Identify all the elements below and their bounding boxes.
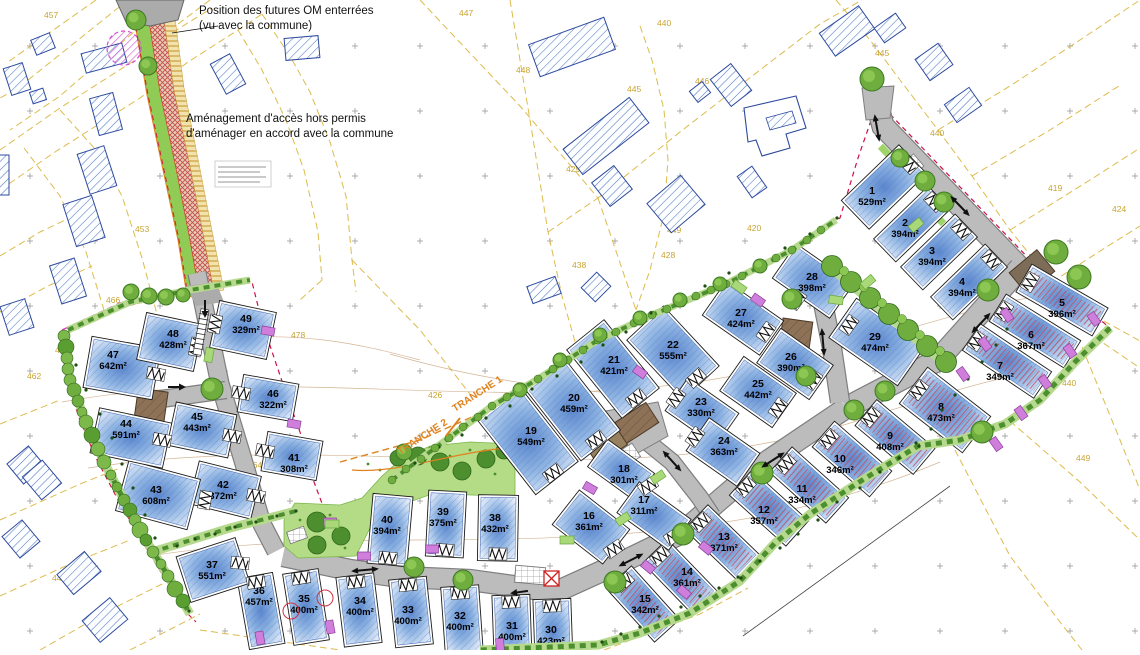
svg-text:424m²: 424m² [727,319,754,330]
svg-text:3: 3 [929,245,935,257]
svg-text:608m²: 608m² [142,496,169,507]
svg-text:14: 14 [681,566,693,578]
svg-text:23: 23 [695,396,707,408]
svg-text:7: 7 [997,360,1003,372]
svg-text:342m²: 342m² [631,605,658,616]
svg-text:2: 2 [902,217,908,229]
svg-text:591m²: 591m² [112,430,139,441]
svg-text:5: 5 [1059,297,1065,309]
svg-text:26: 26 [785,351,797,363]
svg-text:45: 45 [191,411,203,423]
svg-text:19: 19 [525,425,537,437]
svg-text:400m²: 400m² [290,605,317,616]
svg-text:555m²: 555m² [659,351,686,362]
svg-text:394m²: 394m² [373,526,400,537]
svg-text:428m²: 428m² [159,340,186,351]
svg-text:474m²: 474m² [861,343,888,354]
svg-text:346m²: 346m² [826,465,853,476]
svg-text:457m²: 457m² [245,597,272,608]
svg-text:34: 34 [354,595,366,607]
svg-text:371m²: 371m² [710,543,737,554]
svg-text:529m²: 529m² [858,197,885,208]
svg-text:440: 440 [657,18,671,28]
svg-text:361m²: 361m² [673,578,700,589]
svg-text:29: 29 [869,331,881,343]
svg-text:21: 21 [608,354,620,366]
svg-text:40: 40 [381,514,393,526]
svg-text:398m²: 398m² [798,283,825,294]
svg-text:551m²: 551m² [198,571,225,582]
svg-text:49: 49 [240,313,252,325]
svg-text:442m²: 442m² [744,390,771,401]
svg-text:334m²: 334m² [788,495,815,506]
svg-text:396m²: 396m² [1048,309,1075,320]
svg-text:394m²: 394m² [948,288,975,299]
svg-text:24: 24 [718,435,730,447]
svg-text:375m²: 375m² [429,518,456,529]
svg-text:9: 9 [887,430,893,442]
svg-text:372m²: 372m² [209,491,236,502]
svg-text:31: 31 [506,620,518,632]
svg-text:30: 30 [545,624,557,636]
svg-text:400m²: 400m² [394,616,421,627]
svg-text:642m²: 642m² [99,361,126,372]
svg-text:419: 419 [1048,183,1062,193]
svg-text:426: 426 [428,390,442,400]
svg-text:16: 16 [583,510,595,522]
svg-text:330m²: 330m² [687,408,714,419]
svg-text:400m²: 400m² [446,622,473,633]
svg-text:428: 428 [661,250,675,260]
svg-text:Aménagement d'accès hors permi: Aménagement d'accès hors permis [186,113,366,125]
svg-text:394m²: 394m² [918,257,945,268]
svg-text:6: 6 [1028,329,1034,341]
svg-text:311m²: 311m² [631,506,658,517]
svg-text:43: 43 [150,484,162,496]
svg-text:445: 445 [875,48,889,58]
svg-text:20: 20 [568,392,580,404]
svg-text:420: 420 [747,223,761,233]
svg-text:12: 12 [758,504,770,516]
svg-text:432m²: 432m² [481,524,508,535]
svg-text:10: 10 [834,453,846,465]
svg-text:1: 1 [869,185,875,197]
svg-text:28: 28 [806,271,818,283]
svg-text:421m²: 421m² [600,366,627,377]
svg-text:329m²: 329m² [232,325,259,336]
svg-text:308m²: 308m² [280,464,307,475]
svg-text:449: 449 [1076,453,1090,463]
svg-text:44: 44 [120,418,132,430]
svg-text:549m²: 549m² [517,437,544,448]
svg-text:33: 33 [402,604,414,616]
svg-text:443m²: 443m² [183,423,210,434]
svg-text:440: 440 [930,128,944,138]
svg-text:46: 46 [267,388,279,400]
svg-text:22: 22 [667,339,679,351]
svg-text:400m²: 400m² [346,607,373,618]
svg-text:41: 41 [288,452,300,464]
svg-text:48: 48 [167,328,179,340]
svg-text:438: 438 [572,260,586,270]
svg-text:357m²: 357m² [750,516,777,527]
svg-text:473m²: 473m² [927,413,954,424]
svg-text:459m²: 459m² [560,404,587,415]
svg-text:35: 35 [298,593,310,605]
svg-text:448: 448 [516,65,530,75]
svg-text:d'aménager en accord avec la c: d'aménager en accord avec la commune [186,128,393,140]
svg-text:361m²: 361m² [575,522,602,533]
svg-text:39: 39 [437,506,449,518]
svg-text:457: 457 [44,10,58,20]
svg-text:462: 462 [27,371,41,381]
svg-text:25: 25 [752,378,764,390]
svg-text:478: 478 [291,330,305,340]
svg-text:4: 4 [959,276,965,288]
svg-text:27: 27 [735,307,747,319]
svg-text:301m²: 301m² [610,475,637,486]
svg-text:322m²: 322m² [259,400,286,411]
svg-text:424: 424 [1112,204,1126,214]
svg-text:Position des futures OM enterr: Position des futures OM enterrées [199,5,374,17]
svg-text:42: 42 [217,479,229,491]
svg-text:13: 13 [718,531,730,543]
svg-text:367m²: 367m² [1017,341,1044,352]
svg-text:11: 11 [796,483,807,495]
svg-text:18: 18 [618,463,630,475]
svg-text:349m²: 349m² [986,372,1013,383]
svg-text:38: 38 [489,512,501,524]
svg-text:363m²: 363m² [710,447,737,458]
svg-text:15: 15 [639,593,651,605]
svg-text:32: 32 [454,610,466,622]
svg-text:453: 453 [135,224,149,234]
svg-text:445: 445 [627,84,641,94]
svg-text:47: 47 [107,349,119,361]
svg-text:408m²: 408m² [876,442,903,453]
svg-text:447: 447 [459,8,473,18]
svg-text:37: 37 [206,559,218,571]
